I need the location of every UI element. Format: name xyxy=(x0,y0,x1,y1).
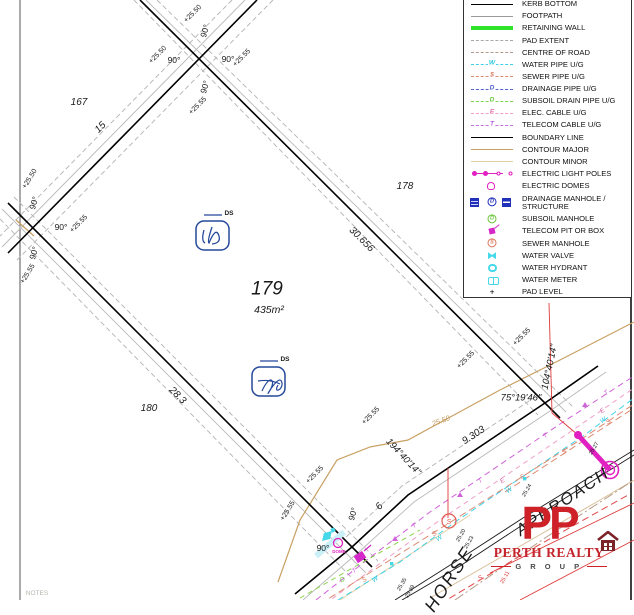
legend-label: ELECTRIC LIGHT POLES xyxy=(522,170,611,178)
legend-item: SSEWER MANHOLE xyxy=(469,238,631,250)
svg-text:S: S xyxy=(361,576,369,585)
legend-label: CONTOUR MAJOR xyxy=(522,146,589,154)
legend-label: PAD EXTENT xyxy=(522,37,569,45)
elec-glyph: E xyxy=(489,109,495,116)
subsoil-glyph: D xyxy=(489,97,496,104)
svg-text:E: E xyxy=(499,477,507,486)
lot-number-167: 167 xyxy=(71,98,88,108)
bearing-label: 75°19'46" xyxy=(501,393,542,403)
sewer-manhole-symbol: S xyxy=(469,238,515,249)
legend-label: WATER HYDRANT xyxy=(522,264,587,272)
pad-level-glyph: + xyxy=(489,287,496,296)
angle-label: 90° xyxy=(55,223,68,232)
legend-label: FOOTPATH xyxy=(522,12,562,20)
legend-item: +PAD LEVEL xyxy=(469,286,631,298)
legend-item: CENTRE OF ROAD xyxy=(469,47,631,59)
notes-label: NOTES xyxy=(26,591,48,598)
logo-rule-right xyxy=(587,566,607,567)
legend-label: WATER PIPE U/G xyxy=(522,61,584,69)
subsoil-manhole-symbol: D xyxy=(469,214,515,225)
svg-text:T: T xyxy=(542,432,550,441)
electric-domes-symbol xyxy=(469,181,515,192)
centre-of-road-symbol xyxy=(469,47,515,58)
legend-label: TELECOM CABLE U/G xyxy=(522,121,601,129)
legend-panel: KERB BOTTOM FOOTPATH RETAINING WALL PAD … xyxy=(463,0,632,298)
legend-label: BOUNDARY LINE xyxy=(522,134,584,142)
angle-label: 90° xyxy=(168,56,181,65)
legend-item: PAD EXTENT xyxy=(469,34,631,46)
drainage-structure-2 xyxy=(252,361,285,396)
logo-group-text: G R O U P xyxy=(515,562,582,571)
water-glyph: W xyxy=(488,61,496,68)
legend-label: CONTOUR MINOR xyxy=(522,158,588,166)
svg-text:W: W xyxy=(371,574,381,584)
elec-cable-symbol: E xyxy=(469,108,515,119)
legend-item: RETAINING WALL xyxy=(469,22,631,34)
telecom-cable-symbol: T xyxy=(469,120,515,131)
site-plan-page: { "colors":{"boundary":"#000000","footpa… xyxy=(0,0,634,600)
lot-area-179: 435m² xyxy=(254,305,284,316)
drainage-structure-1 xyxy=(196,215,229,250)
drainage-glyph: D xyxy=(489,85,496,92)
water-meter-symbol xyxy=(469,275,515,286)
legend-label: WATER VALVE xyxy=(522,252,574,260)
legend-item: DSUBSOIL MANHOLE xyxy=(469,213,631,225)
legend-item: EELEC. CABLE U/G xyxy=(469,107,631,119)
legend-label: DRAINAGE MANHOLE / STRUCTURE xyxy=(522,195,626,211)
legend-item: BOUNDARY LINE xyxy=(469,132,631,144)
footpath-symbol xyxy=(469,11,515,22)
legend-item: WATER VALVE xyxy=(469,250,631,262)
water-pipe-symbol: W xyxy=(469,59,515,70)
legend-item: TELECOM PIT OR BOX xyxy=(469,225,631,237)
legend-item: FOOTPATH xyxy=(469,10,631,22)
legend-item: DDRAINAGE MANHOLE / STRUCTURE xyxy=(469,192,631,213)
retaining-wall-symbol xyxy=(469,23,515,34)
legend-item: TTELECOM CABLE U/G xyxy=(469,119,631,131)
legend-label: RETAINING WALL xyxy=(522,24,585,32)
legend-label: PAD LEVEL xyxy=(522,288,563,296)
perth-realty-logo: PP PERTH REALTY G R O U P xyxy=(489,505,609,571)
electric-light-poles-symbol xyxy=(469,169,515,180)
kerb-bottom-symbol xyxy=(469,0,515,10)
svg-text:D: D xyxy=(339,576,347,585)
legend-item: $SEWER PIPE U/G xyxy=(469,71,631,83)
legend-item: WWATER PIPE U/G xyxy=(469,59,631,71)
drainage-manhole-symbol: D xyxy=(469,197,515,208)
legend-label: SUBSOIL MANHOLE xyxy=(522,215,594,223)
legend-label: KERB BOTTOM xyxy=(522,0,577,8)
contour-major-symbol xyxy=(469,144,515,155)
legend-label: ELEC. CABLE U/G xyxy=(522,109,587,117)
pad-extent-symbol xyxy=(469,35,515,46)
legend-label: SEWER MANHOLE xyxy=(522,240,590,248)
subsoil-drain-symbol: D xyxy=(469,96,515,107)
legend-item: DDRAINAGE PIPE U/G xyxy=(469,83,631,95)
logo-rule-left xyxy=(491,566,511,567)
water-valve-symbol xyxy=(469,250,515,261)
subsoil-manhole-glyph: D xyxy=(488,214,497,223)
sewer-manhole-glyph: S xyxy=(488,238,497,247)
legend-label: DRAINAGE PIPE U/G xyxy=(522,85,597,93)
legend-item: CONTOUR MAJOR xyxy=(469,144,631,156)
legend-label: ELECTRIC DOMES xyxy=(522,182,590,190)
legend-item: WATER HYDRANT xyxy=(469,262,631,274)
water-hydrant-symbol xyxy=(469,262,515,273)
legend-label: WATER METER xyxy=(522,276,577,284)
lot-number-179: 179 xyxy=(251,280,283,299)
ds-label: DS xyxy=(280,357,289,364)
contour-minor-symbol xyxy=(469,156,515,167)
legend-label: SEWER PIPE U/G xyxy=(522,73,585,81)
legend-item: KERB BOTTOM xyxy=(469,0,631,10)
legend-item: ELECTRIC LIGHT POLES xyxy=(469,168,631,180)
boundary-line-symbol xyxy=(469,132,515,143)
logo-pp-monogram: PP xyxy=(521,505,576,543)
legend-item: DSUBSOIL DRAIN PIPE U/G xyxy=(469,95,631,107)
angle-label: 90° xyxy=(317,544,330,553)
lot-number-178: 178 xyxy=(397,182,414,192)
sewer-manhole-icon: S xyxy=(442,514,456,528)
ds-label: DS xyxy=(224,211,233,218)
legend-label: CENTRE OF ROAD xyxy=(522,49,590,57)
drainage-pipe-symbol: D xyxy=(469,84,515,95)
legend-label: SUBSOIL DRAIN PIPE U/G xyxy=(522,97,615,105)
legend-item: CONTOUR MINOR xyxy=(469,156,631,168)
svg-text:S: S xyxy=(447,519,452,526)
drainage-manhole-glyph: D xyxy=(488,198,497,207)
lot-number-180: 180 xyxy=(141,404,158,414)
legend-item: ELECTRIC DOMES xyxy=(469,180,631,192)
dome-label: DOME xyxy=(332,550,346,555)
legend-item: WATER METER xyxy=(469,274,631,286)
telecom-pit-symbol xyxy=(469,226,515,237)
sewer-pipe-symbol: $ xyxy=(469,71,515,82)
pad-level-symbol: + xyxy=(469,287,515,298)
sewer-glyph: $ xyxy=(489,73,495,80)
telecom-glyph: T xyxy=(489,122,495,128)
logo-group-row: G R O U P xyxy=(489,562,609,571)
legend-label: TELECOM PIT OR BOX xyxy=(522,227,604,235)
